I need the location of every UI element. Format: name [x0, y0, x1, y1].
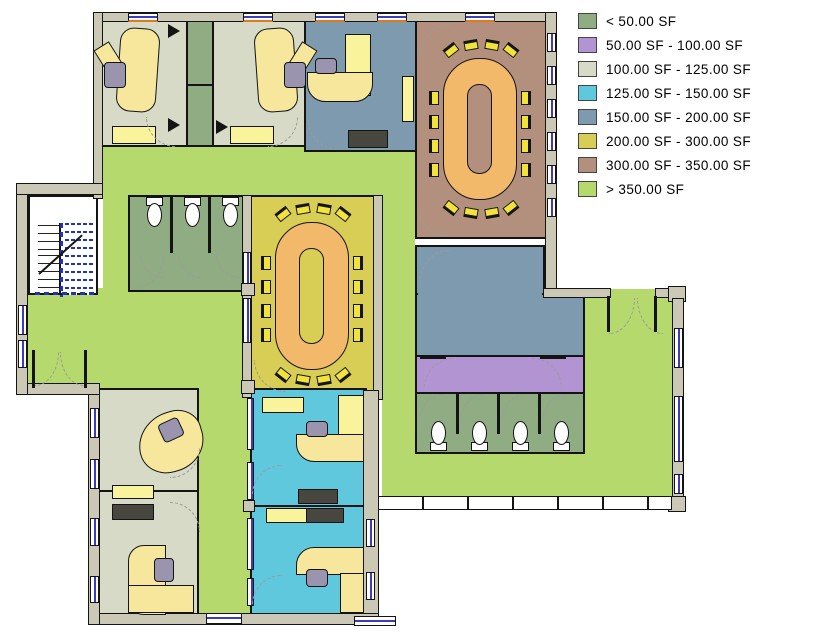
- wall-cabinet-office-n[interactable]: [402, 76, 414, 122]
- legend-swatch: [578, 133, 597, 149]
- chair-office-s2[interactable]: [306, 569, 328, 587]
- conference-ne-table-group[interactable]: [440, 55, 520, 203]
- chair: [261, 280, 271, 294]
- credenza-office-n[interactable]: [348, 130, 388, 148]
- legend-swatch: [578, 13, 597, 29]
- wall-lobby-step: [16, 383, 100, 395]
- glazing-office-south2-a: [247, 518, 254, 570]
- cabinet-office-sw1[interactable]: [112, 485, 154, 499]
- legend-swatch: [578, 37, 597, 53]
- window-south-wing-1: [366, 519, 375, 547]
- wall-junction-2: [241, 380, 255, 394]
- chair: [521, 139, 531, 153]
- legend-label: < 50.00 SF: [606, 14, 676, 29]
- entry-door-leaf: [607, 296, 610, 332]
- cabinet-office-s2[interactable]: [266, 508, 308, 523]
- legend-label: 150.00 SF - 200.00 SF: [606, 110, 751, 125]
- door-leaf: [540, 356, 566, 359]
- corridor-east-strip: [382, 197, 415, 297]
- toilet: [144, 197, 164, 227]
- conference-ne-table-slot: [467, 84, 492, 174]
- window-conference-ne-3: [547, 99, 556, 118]
- legend-item: 125.00 SF - 150.00 SF: [578, 85, 751, 101]
- desk-office-s1[interactable]: [296, 434, 364, 462]
- window-southwest-1: [90, 408, 99, 438]
- legend-item: 50.00 SF - 100.00 SF: [578, 37, 751, 53]
- chair-office-nw1[interactable]: [104, 62, 126, 88]
- window-east-1: [674, 328, 683, 368]
- legend-item: 100.00 SF - 125.00 SF: [578, 61, 751, 77]
- stall-partition: [208, 195, 211, 253]
- legend-label: 100.00 SF - 125.00 SF: [606, 62, 751, 77]
- toilet: [182, 197, 202, 227]
- legend-item: > 350.00 SF: [578, 181, 751, 197]
- chair-office-s1[interactable]: [306, 421, 328, 437]
- corridor-west-strip: [103, 197, 129, 292]
- door-leaf: [420, 356, 446, 359]
- stair-path-dashes: [63, 223, 94, 295]
- legend-item: 300.00 SF - 350.00 SF: [578, 157, 751, 173]
- window-conference-ne-5: [547, 165, 556, 184]
- chair-office-sw2[interactable]: [154, 558, 174, 582]
- window-south-small: [354, 616, 396, 626]
- chair: [521, 163, 531, 177]
- chair: [521, 115, 531, 129]
- toilet: [551, 420, 571, 450]
- toilet: [510, 420, 530, 450]
- toilet: [428, 420, 448, 450]
- conference-center-table-slot: [299, 248, 324, 344]
- wall-conference-center-right: [373, 195, 383, 400]
- stall-partition: [456, 392, 459, 434]
- chair: [261, 256, 271, 270]
- legend-swatch: [578, 181, 597, 197]
- credenza-office-sw2[interactable]: [112, 504, 154, 520]
- lobby-door-leaf: [32, 350, 35, 388]
- window-southwest-4: [90, 576, 99, 603]
- legend-label: > 350.00 SF: [606, 182, 684, 197]
- bifold-door-icon-3: [216, 120, 228, 134]
- cabinet-office-s1[interactable]: [262, 397, 304, 413]
- stair-treads-upper: [38, 225, 60, 257]
- wall-junction-3: [243, 500, 255, 512]
- stall-partition: [538, 392, 541, 434]
- window-north-4: [377, 13, 407, 22]
- color-fill-legend[interactable]: < 50.00 SF 50.00 SF - 100.00 SF 100.00 S…: [578, 13, 751, 197]
- window-north-2: [243, 13, 273, 22]
- stair-path-vertical: [60, 223, 63, 297]
- chair: [429, 163, 439, 177]
- chair: [261, 304, 271, 318]
- glazing-office-south1-a: [247, 398, 254, 450]
- window-band-south: [378, 496, 672, 510]
- room-east-lower[interactable]: [415, 293, 585, 357]
- window-southwest-2: [90, 459, 99, 489]
- wall-entry-left: [543, 288, 611, 298]
- room-east-merge-patch: [418, 291, 542, 297]
- credenza-office-s2[interactable]: [306, 508, 344, 523]
- wall-east-upper: [545, 12, 557, 292]
- entry-door-leaf: [654, 296, 657, 332]
- window-east-3: [674, 474, 683, 494]
- legend-swatch: [578, 85, 597, 101]
- window-conference-ne-1: [547, 33, 556, 52]
- toilet: [220, 197, 240, 227]
- window-north-1: [128, 13, 158, 22]
- closet-divider-wall: [186, 84, 214, 86]
- window-southwest-3: [90, 518, 99, 546]
- tall-cabinet-office-s1[interactable]: [338, 395, 364, 439]
- legend-item: 200.00 SF - 300.00 SF: [578, 133, 751, 149]
- legend-item: < 50.00 SF: [578, 13, 751, 29]
- legend-swatch: [578, 157, 597, 173]
- lobby-door-leaf: [84, 350, 87, 388]
- chair-office-n[interactable]: [315, 58, 337, 74]
- chair: [429, 91, 439, 105]
- legend-item: 150.00 SF - 200.00 SF: [578, 109, 751, 125]
- door-corridor-south[interactable]: [206, 613, 242, 624]
- chair: [353, 280, 363, 294]
- legend-label: 50.00 SF - 100.00 SF: [606, 38, 743, 53]
- toilet: [469, 420, 489, 450]
- corridor-center: [95, 288, 252, 392]
- window-north-5: [465, 13, 495, 22]
- wall-conference-center-left: [242, 195, 252, 398]
- window-lobby-2: [18, 340, 27, 368]
- chair: [429, 115, 439, 129]
- window-conference-ne-2: [547, 66, 556, 85]
- conference-center-table-group[interactable]: [271, 218, 353, 374]
- legend-label: 125.00 SF - 150.00 SF: [606, 86, 751, 101]
- desk-office-n[interactable]: [307, 72, 373, 102]
- window-lobby-1: [18, 305, 27, 335]
- chair-office-nw2[interactable]: [284, 62, 306, 88]
- desk-office-sw2-h[interactable]: [128, 585, 194, 613]
- wall-northwest-left: [93, 12, 103, 199]
- stairwell[interactable]: [28, 195, 98, 295]
- legend-label: 300.00 SF - 350.00 SF: [606, 158, 751, 173]
- legend-swatch: [578, 109, 597, 125]
- window-east-2: [674, 396, 683, 462]
- chair: [261, 328, 271, 342]
- credenza-office-s1[interactable]: [298, 489, 338, 504]
- stall-partition: [497, 392, 500, 434]
- window-conference-ne-6: [547, 198, 556, 217]
- legend-swatch: [578, 61, 597, 77]
- window-north-3: [315, 13, 345, 22]
- desk-office-s2-v[interactable]: [340, 573, 364, 613]
- glazing-conference-left-2: [243, 298, 251, 343]
- legend-label: 200.00 SF - 300.00 SF: [606, 134, 751, 149]
- wall-junction-1: [241, 283, 255, 296]
- chair: [353, 304, 363, 318]
- stair-path-bottom: [35, 292, 95, 295]
- window-conference-ne-4: [547, 132, 556, 151]
- bifold-door-icon-1: [168, 24, 180, 38]
- chair: [353, 328, 363, 342]
- stall-partition: [170, 195, 173, 253]
- window-south-wing-2: [366, 572, 375, 600]
- floor-plan-canvas: < 50.00 SF 50.00 SF - 100.00 SF 100.00 S…: [0, 0, 818, 633]
- entry-threshold: [611, 289, 655, 298]
- wall-stair-top: [16, 183, 103, 195]
- chair: [429, 139, 439, 153]
- corridor-north[interactable]: [103, 145, 415, 199]
- chair: [353, 256, 363, 270]
- chair: [521, 91, 531, 105]
